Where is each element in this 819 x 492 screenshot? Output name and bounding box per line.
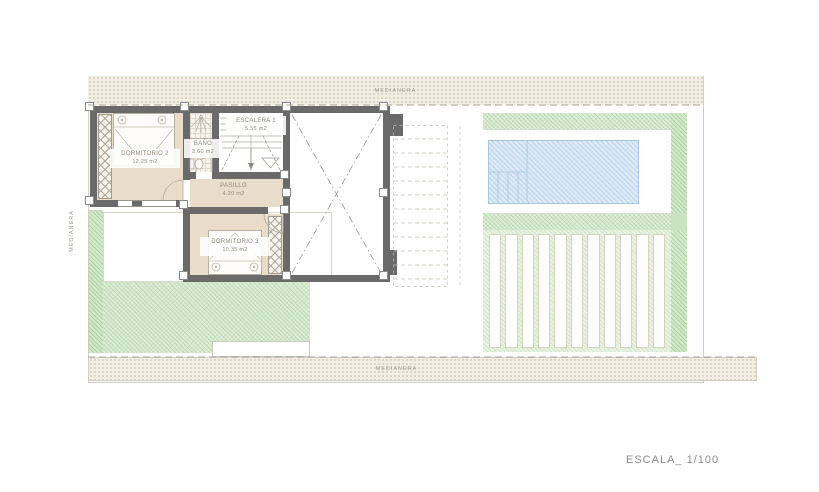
medianera-top-label: MEDIANERA — [375, 88, 417, 94]
wardrobe-dormitorio3 — [268, 216, 282, 274]
garden-right-strip — [671, 113, 687, 352]
pergola-slat — [620, 234, 632, 348]
pergola-slat — [653, 234, 665, 348]
window-dorm2 — [118, 200, 176, 207]
garden-mid-band — [483, 213, 671, 230]
pillar — [179, 200, 188, 209]
pillar — [379, 271, 388, 280]
pillar — [379, 188, 388, 197]
pergola-slat — [587, 234, 599, 348]
pillar — [282, 102, 291, 111]
scale-label: ESCALA_ 1/100 — [626, 454, 766, 466]
pergola-slat — [538, 234, 550, 348]
pillar — [379, 102, 388, 111]
wall-top — [90, 106, 390, 113]
pergola-slat — [636, 234, 648, 348]
pillar — [280, 170, 289, 179]
bano-label: BAÑO 3.60 m2 — [184, 139, 222, 158]
boundary-band-bottom: MEDIANERA — [88, 357, 757, 381]
wall-dorm2-bottom-a — [90, 200, 118, 207]
medianera-bottom-label: MEDIANERA — [376, 366, 418, 372]
dormitorio3-label: DORMITORIO 3 10.35 m2 — [200, 237, 270, 256]
medianera-left-label: MEDIANERA — [69, 191, 75, 271]
pillar — [180, 102, 189, 111]
wall-stub-bottom-right — [390, 250, 397, 275]
pergola-slat — [489, 234, 501, 348]
pillar — [280, 205, 289, 214]
pergola-slat — [571, 234, 583, 348]
pergola-deck — [483, 230, 671, 352]
garden-corner-patch — [671, 213, 687, 230]
pasillo-label: PASILLO 4.20 m2 — [206, 182, 261, 199]
wall-pasillo-dorm3 — [183, 207, 268, 214]
pillar — [179, 271, 188, 280]
shower-tray — [190, 113, 212, 139]
boundary-band-top: MEDIANERA — [88, 76, 703, 105]
pergola-slat — [522, 234, 534, 348]
pillar — [85, 196, 94, 205]
escalera-label: ESCALERA 1 5.55 m2 — [226, 116, 286, 135]
garden-left-strip — [89, 210, 103, 353]
wall-mid-a — [183, 172, 196, 179]
wall-mid-b — [214, 172, 283, 179]
dormitorio2-label: DORMITORIO 2 12.25 m2 — [110, 149, 180, 168]
pillar — [282, 271, 291, 280]
wall-left — [90, 106, 97, 207]
pergola-slat — [505, 234, 517, 348]
pool — [488, 140, 639, 204]
pergola-slat — [554, 234, 566, 348]
pergola-slat — [604, 234, 616, 348]
pillar — [85, 102, 94, 111]
floor-plan-canvas: MEDIANERA MEDIANERA MEDIANERA — [0, 0, 819, 492]
pillar — [282, 188, 291, 197]
wall-stub-top-right — [390, 114, 403, 136]
pool-garden-top-band — [483, 113, 687, 130]
lawn-step — [212, 341, 310, 357]
